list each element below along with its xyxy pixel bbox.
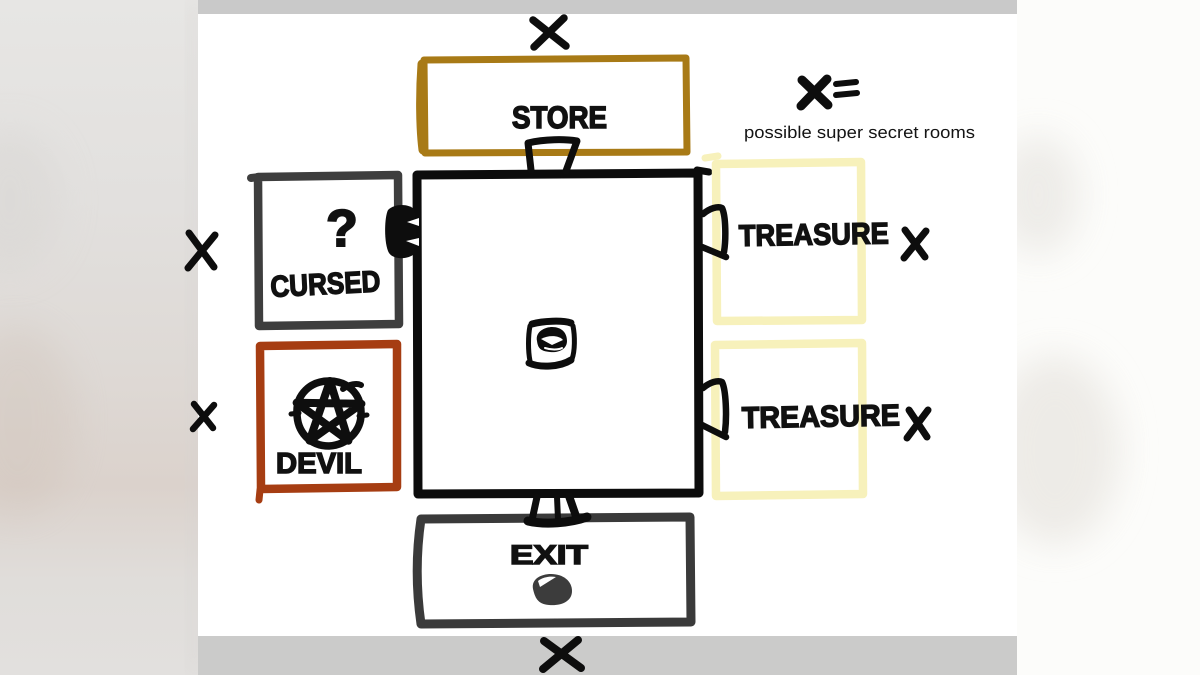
- svg-text:EXIT: EXIT: [510, 540, 589, 570]
- svg-text:TREASURE: TREASURE: [742, 399, 901, 435]
- svg-text:STORE: STORE: [512, 100, 607, 135]
- svg-text:DEVIL: DEVIL: [276, 448, 362, 480]
- svg-text:CURSED: CURSED: [270, 265, 382, 304]
- svg-text:possible super secret rooms: possible super secret rooms: [744, 123, 975, 142]
- svg-text:TREASURE: TREASURE: [739, 217, 890, 253]
- svg-text:?: ?: [326, 200, 358, 258]
